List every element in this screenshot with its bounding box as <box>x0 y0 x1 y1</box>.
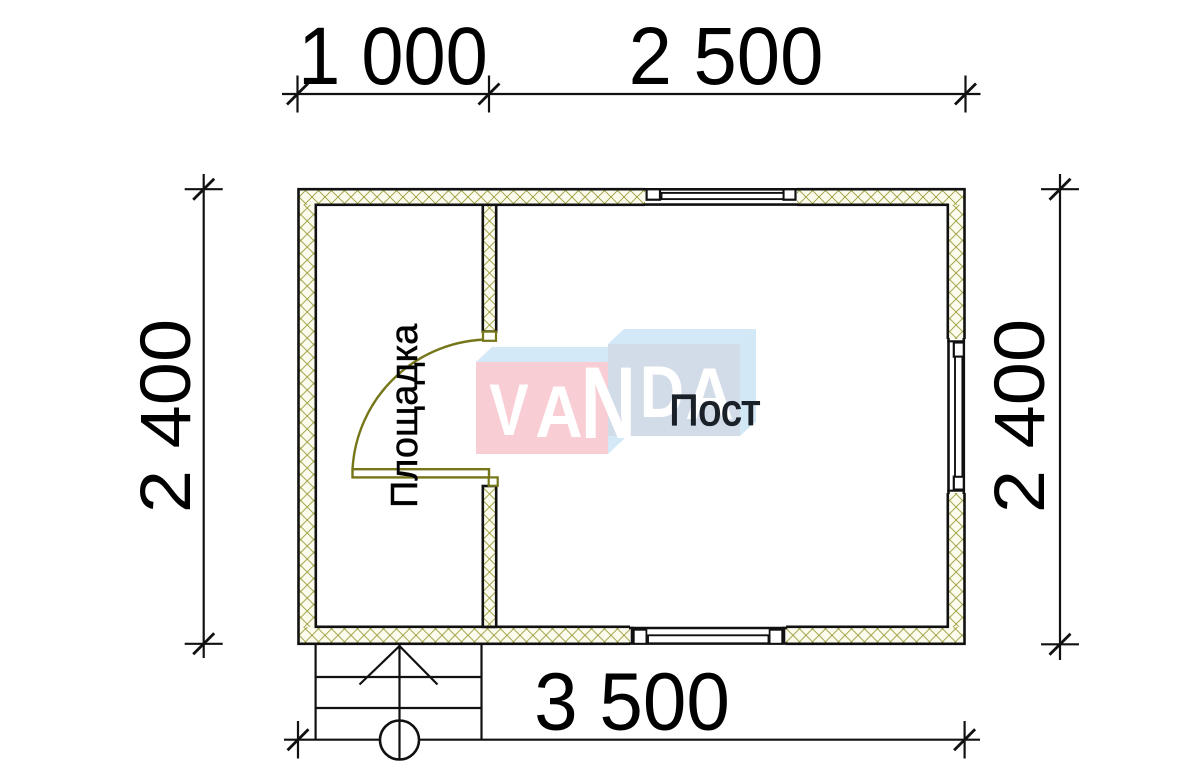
svg-text:2 400: 2 400 <box>126 319 205 513</box>
svg-text:3 500: 3 500 <box>534 656 730 747</box>
svg-text:Пост: Пост <box>669 386 760 435</box>
svg-text:2 400: 2 400 <box>980 319 1059 513</box>
svg-text:V: V <box>489 370 528 451</box>
svg-text:1 000: 1 000 <box>298 10 488 101</box>
svg-text:Площадка: Площадка <box>384 323 426 508</box>
svg-text:A: A <box>535 371 582 453</box>
svg-text:N: N <box>581 348 636 461</box>
svg-text:2 500: 2 500 <box>629 10 824 101</box>
